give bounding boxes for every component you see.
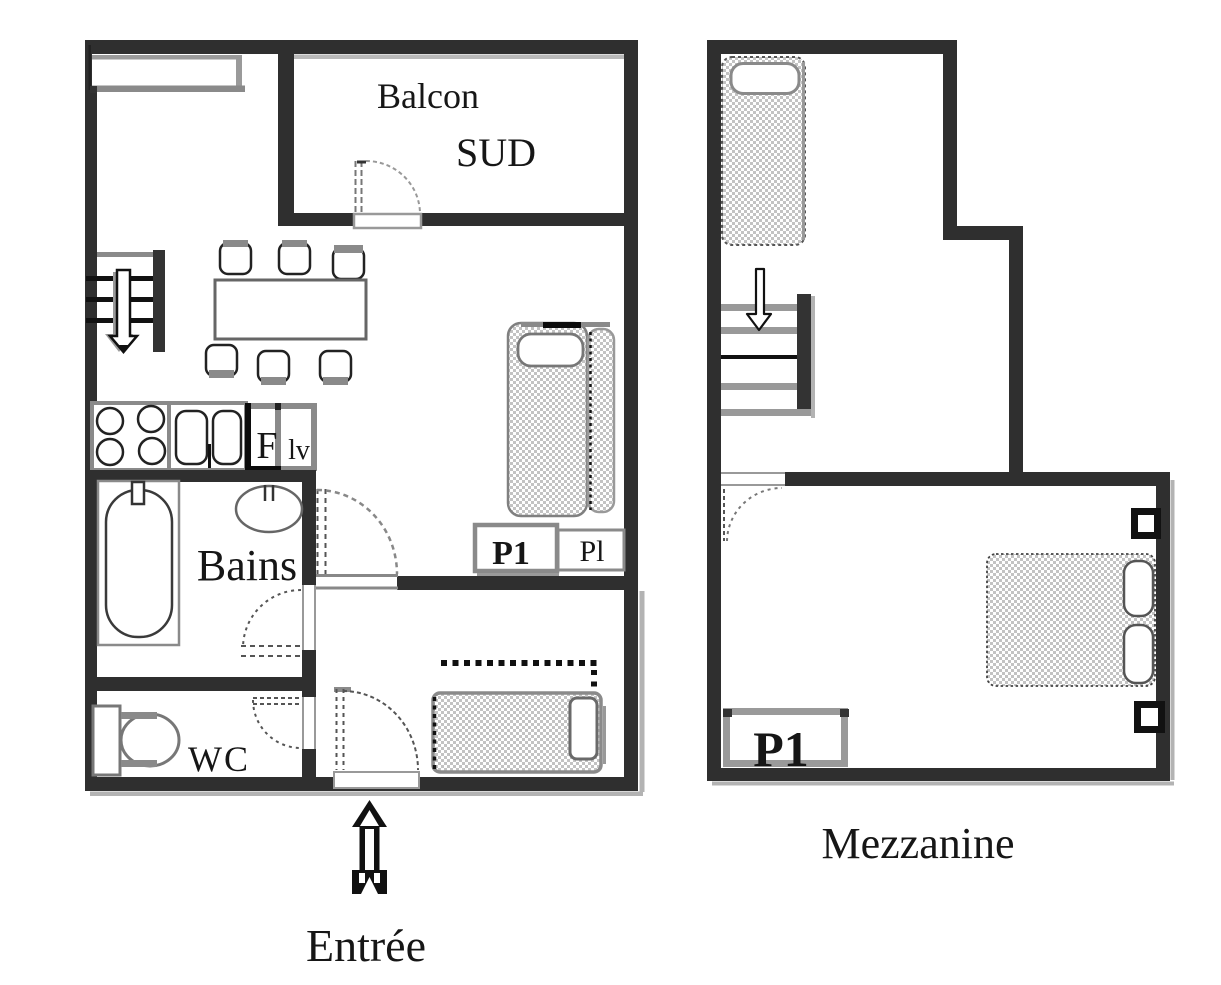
svg-text:F: F: [256, 425, 277, 467]
svg-text:SUD: SUD: [456, 130, 536, 175]
svg-text:P1: P1: [753, 721, 809, 777]
svg-text:P1: P1: [492, 535, 530, 572]
svg-text:Mezzanine: Mezzanine: [822, 819, 1015, 868]
svg-text:Balcon: Balcon: [377, 76, 479, 116]
svg-text:Pl: Pl: [579, 535, 604, 568]
svg-text:WC: WC: [188, 739, 250, 779]
svg-text:Entrée: Entrée: [306, 920, 426, 971]
svg-text:Bains: Bains: [197, 541, 297, 590]
svg-text:lv: lv: [288, 435, 310, 466]
